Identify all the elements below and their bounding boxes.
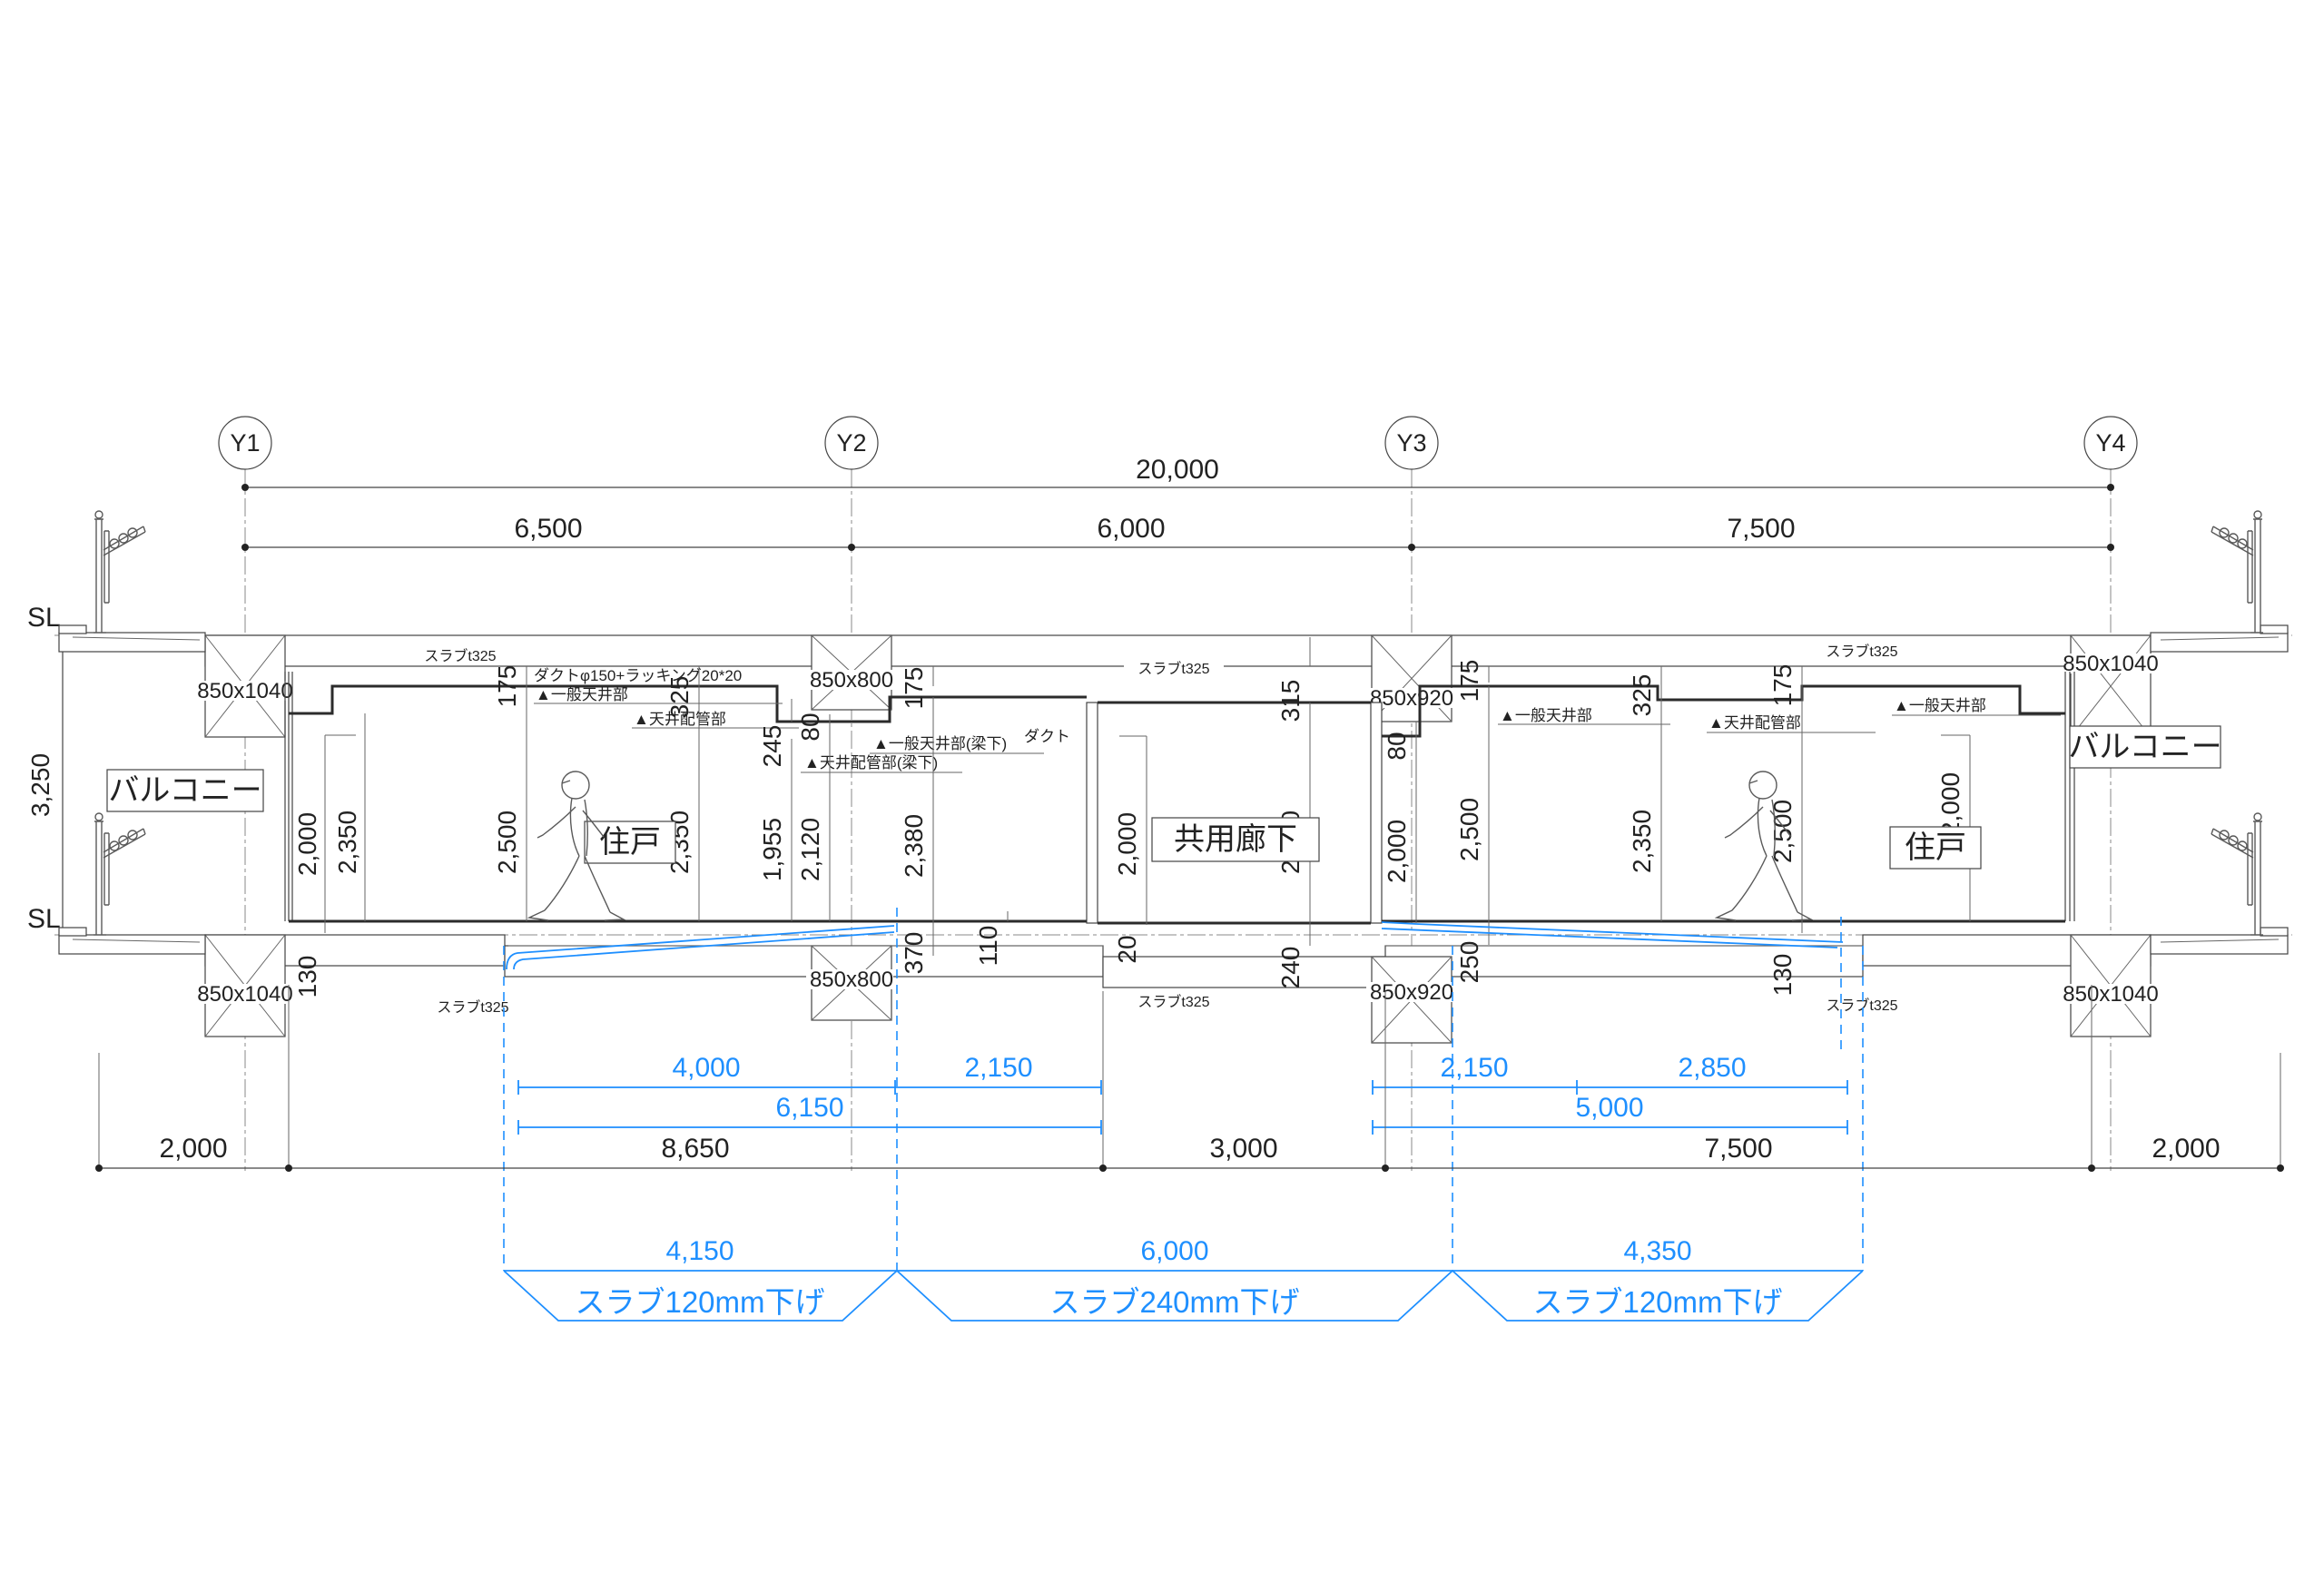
vdim-14: 110: [974, 926, 1002, 967]
vdim-10: 2,120: [796, 818, 824, 881]
section-drawing-page: Y1 Y2 Y3 Y4 20,000 6,500 6,000 7,500 SL …: [0, 0, 2324, 1592]
bottom-dim-3: 3,000: [1209, 1134, 1277, 1164]
slab-note-bottom-center: スラブt325: [1137, 993, 1209, 1010]
beam-label-top-y4: 850x1040: [2063, 652, 2158, 676]
slab-note-top-center: スラブt325: [1137, 660, 1209, 677]
blue-dim-left-4000: 4,000: [672, 1053, 740, 1083]
blue-dim-lower-6000: 6,000: [1140, 1236, 1208, 1266]
room-label-unit-left: 住戸: [599, 825, 661, 860]
sl-label-top: SL: [27, 603, 61, 633]
vdim-5: 325: [665, 676, 694, 719]
room-label-unit-right: 住戸: [1905, 830, 1966, 865]
beam-label-top-y1: 850x1040: [197, 679, 292, 703]
vdim-8: 1,955: [758, 818, 786, 881]
vdim-25: 325: [1628, 674, 1656, 717]
vdim-24: 175: [1455, 660, 1483, 703]
vdim-21: 2,000: [1383, 820, 1411, 883]
bottom-dim-2: 8,650: [661, 1134, 729, 1164]
vdim-2: 2,350: [333, 811, 361, 874]
grid-label-y1: Y1: [230, 429, 260, 457]
person-right: [1717, 771, 1811, 920]
grid-label-y3: Y3: [1396, 429, 1426, 457]
annotation-duct-run: ダクトφ150+ラッキング20*20: [534, 667, 742, 684]
bottom-dim-4: 7,500: [1704, 1134, 1772, 1164]
room-labels: バルコニー 住戸 共用廊下 住戸 バルコニー: [107, 726, 2222, 869]
blue-dim-left-total: 6,150: [775, 1093, 843, 1123]
vdim-7: 245: [758, 725, 786, 768]
slab-drop-label-center: スラブ240mm下げ: [1049, 1285, 1299, 1319]
corridor-wall-right: [1371, 703, 1382, 923]
beam-label-bottom-y1: 850x1040: [197, 982, 292, 1007]
bottom-dim-1: 2,000: [159, 1134, 227, 1164]
vdim-23: 2,500: [1455, 798, 1483, 861]
dim-span-1: 6,500: [514, 514, 582, 544]
vdim-19: 240: [1276, 947, 1305, 989]
vdim-18: 20: [1113, 935, 1141, 963]
annotation-ceiling-general-2: ▲一般天井部: [1500, 707, 1592, 724]
vdim-0: 2,000: [293, 812, 321, 876]
annotation-duct: ダクト: [1024, 728, 1070, 745]
vdim-11: 175: [900, 667, 928, 710]
blue-dim-right-2850: 2,850: [1678, 1053, 1746, 1083]
vdim-20: 80: [1383, 732, 1411, 760]
vdim-13: 370: [900, 932, 928, 975]
beam-label-top-y3: 850x920: [1370, 686, 1453, 711]
room-label-corridor: 共用廊下: [1174, 822, 1297, 857]
slab-note-top-right: スラブt325: [1826, 643, 1897, 660]
beam-label-bottom-y3: 850x920: [1370, 980, 1453, 1005]
beam-top-y4: [2071, 635, 2151, 737]
grid-label-y2: Y2: [836, 429, 866, 457]
vdim-28: 2,500: [1768, 800, 1797, 863]
slab-drop-label-right: スラブ120mm下げ: [1532, 1285, 1782, 1319]
bottom-dim-5: 2,000: [2152, 1134, 2220, 1164]
blue-dim-right-total: 5,000: [1575, 1093, 1643, 1123]
vdim-27: 175: [1768, 664, 1797, 707]
section-drawing: Y1 Y2 Y3 Y4 20,000 6,500 6,000 7,500 SL …: [0, 0, 2324, 1592]
grid-label-y4: Y4: [2095, 429, 2125, 457]
slab-note-bottom-right: スラブt325: [1826, 997, 1897, 1014]
room-label-balcony-right: バルコニー: [2068, 730, 2221, 764]
slab-drop-label-left: スラブ120mm下げ: [575, 1285, 824, 1319]
annotation-ceiling-pipe-2: ▲天井配管部: [1709, 714, 1801, 732]
vdim-26: 2,350: [1628, 810, 1656, 873]
vdim-29: 130: [1768, 954, 1797, 997]
corridor-wall-left: [1087, 703, 1098, 923]
blue-dim-lower-4350: 4,350: [1623, 1236, 1691, 1266]
dim-span-2: 6,000: [1097, 514, 1165, 544]
vdim-15: 2,000: [1113, 812, 1141, 876]
annotation-ceiling-general-1: ▲一般天井部: [536, 686, 628, 703]
grid-lines: Y1 Y2 Y3 Y4: [219, 417, 2137, 1171]
window-left: [285, 672, 292, 921]
vdim-1: 130: [293, 956, 321, 998]
vdim-3: 2,500: [493, 811, 521, 874]
blue-dim-right-2150: 2,150: [1440, 1053, 1508, 1083]
annotation-ceiling-general-beam: ▲一般天井部(梁下): [873, 735, 1007, 752]
dim-overall: 20,000: [1136, 455, 1219, 485]
sl-label-bottom: SL: [27, 904, 61, 934]
vdim-4: 175: [493, 665, 521, 708]
room-label-balcony-left: バルコニー: [108, 773, 261, 808]
vdim-16: 315: [1276, 680, 1305, 722]
annotation-ceiling-pipe-beam: ▲天井配管部(梁下): [804, 754, 938, 771]
vdim-9: 80: [796, 712, 824, 741]
left-balcony: [59, 511, 205, 954]
slab-note-top-left: スラブt325: [424, 647, 496, 664]
beam-label-bottom-y2: 850x800: [810, 968, 893, 992]
blue-dim-lower-4150: 4,150: [665, 1236, 734, 1266]
vdim-22: 250: [1455, 941, 1483, 984]
beam-label-bottom-y4: 850x1040: [2063, 982, 2158, 1007]
annotation-ceiling-general-3: ▲一般天井部: [1894, 697, 1986, 714]
blue-dim-left-2150: 2,150: [964, 1053, 1032, 1083]
dimensions-top: 20,000 6,500 6,000 7,500: [241, 455, 2114, 551]
dim-height-left: 3,250: [26, 753, 54, 817]
bottom-slab: スラブt325 スラブt325 スラブt325: [205, 935, 2151, 1016]
beam-label-top-y2: 850x800: [810, 668, 893, 693]
slab-note-bottom-left: スラブt325: [437, 998, 508, 1016]
dim-span-3: 7,500: [1727, 514, 1795, 544]
structure: [285, 672, 2074, 946]
vdim-12: 2,380: [900, 814, 928, 878]
